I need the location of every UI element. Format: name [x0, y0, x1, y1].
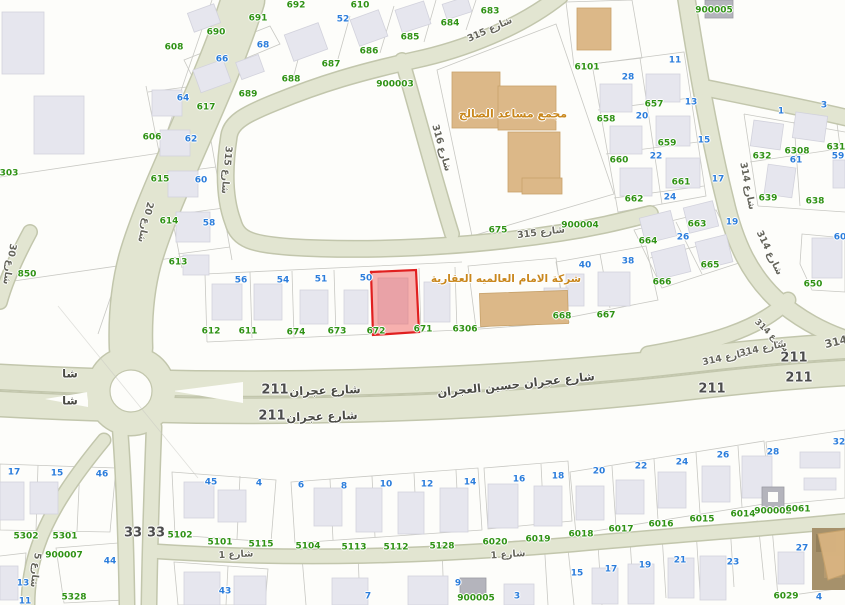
street-label: 314 شارع: [754, 229, 784, 276]
building-number-label: 1: [778, 108, 784, 117]
road-number-label: 211: [780, 352, 807, 365]
parcel-number-label: 674: [287, 329, 306, 338]
street-label: شارع 1: [490, 549, 525, 561]
building-number-label: 20: [636, 113, 649, 122]
map-viewport[interactable]: 6106926916906086896886876866856846836066…: [0, 0, 845, 605]
street-label: 316 شارع: [430, 124, 452, 173]
parcel-number-label: 668: [553, 313, 572, 322]
building-number-label: 62: [185, 136, 198, 145]
parcel-number-label: 900005: [457, 595, 495, 604]
building-number-label: 26: [717, 452, 730, 461]
parcel-number-label: 5113: [341, 544, 366, 553]
parcel-number-label: 660: [610, 157, 629, 166]
street-label: 5 شارع: [28, 552, 42, 588]
parcel-number-label: 606: [143, 134, 162, 143]
street-name-label: شارع عجران حسين العجران: [437, 371, 595, 399]
building-number-label: 17: [8, 469, 21, 478]
building-number-label: 32: [833, 439, 845, 448]
parcel-number-label: 6017: [608, 526, 633, 535]
parcel-number-label: 5101: [207, 539, 232, 548]
parcel-number-label: 614: [160, 218, 179, 227]
parcel-number-label: 5301: [52, 533, 77, 542]
street-label: 315 شارع: [517, 225, 566, 240]
building-number-label: 56: [235, 277, 248, 286]
building-number-label: 22: [650, 153, 663, 162]
street-name-label: شا: [62, 368, 78, 380]
building-number-label: 8: [341, 483, 347, 492]
parcel-number-label: 662: [625, 196, 644, 205]
building-number-label: 10: [380, 481, 393, 490]
parcel-number-label: 667: [597, 312, 616, 321]
parcel-number-label: 6018: [568, 531, 593, 540]
parcel-number-label: 608: [165, 44, 184, 53]
parcel-number-label: 665: [701, 262, 720, 271]
road-number-label: 211: [785, 372, 812, 385]
parcel-number-label: 5302: [13, 533, 38, 542]
parcel-number-label: 666: [653, 279, 672, 288]
parcel-number-label: 684: [441, 20, 460, 29]
parcel-number-label: 672: [367, 328, 386, 337]
parcel-number-label: 675: [489, 227, 508, 236]
parcel-number-label: 683: [481, 8, 500, 17]
building-number-label: 22: [635, 463, 648, 472]
parcel-number-label: 5128: [429, 543, 454, 552]
parcel-number-label: 6014: [730, 511, 755, 520]
parcel-number-label: 900004: [561, 222, 599, 231]
parcel-number-label: 900003: [376, 81, 414, 90]
parcel-number-label: 900007: [45, 552, 83, 561]
map-labels: 6106926916906086896886876866856846836066…: [0, 0, 845, 605]
building-number-label: 3: [821, 102, 827, 111]
parcel-number-label: 5102: [167, 532, 192, 541]
building-number-label: 59: [832, 153, 845, 162]
building-number-label: 19: [726, 219, 739, 228]
building-number-label: 24: [676, 459, 689, 468]
building-number-label: 13: [685, 99, 698, 108]
parcel-number-label: 632: [753, 153, 772, 162]
building-number-label: 24: [664, 194, 677, 203]
building-number-label: 60: [834, 234, 845, 243]
building-number-label: 4: [256, 480, 262, 489]
road-number-label: 33: [147, 527, 165, 540]
parcel-number-label: 658: [597, 116, 616, 125]
parcel-number-label: 690: [207, 29, 226, 38]
parcel-number-label: 689: [239, 91, 258, 100]
parcel-number-label: 671: [414, 326, 433, 335]
parcel-number-label: 687: [322, 61, 341, 70]
parcel-number-label: 638: [806, 198, 825, 207]
parcel-number-label: 673: [328, 328, 347, 337]
building-number-label: 19: [639, 562, 652, 571]
building-number-label: 58: [203, 220, 216, 229]
parcel-number-label: 6015: [689, 516, 714, 525]
street-name-label: شارع عجران: [289, 384, 361, 398]
building-number-label: 21: [674, 557, 687, 566]
parcel-number-label: 639: [759, 195, 778, 204]
building-number-label: 17: [605, 566, 618, 575]
parcel-number-label: 688: [282, 76, 301, 85]
building-number-label: 7: [365, 593, 371, 602]
parcel-number-label: 664: [639, 238, 658, 247]
street-name-label: شارع عجران: [286, 410, 358, 424]
parcel-number-label: 615: [151, 176, 170, 185]
parcel-number-label: 659: [658, 140, 677, 149]
building-number-label: 6: [298, 482, 304, 491]
landmark-label: شركة الامام العالميه العقارية: [431, 274, 581, 285]
building-number-label: 68: [257, 42, 270, 51]
parcel-number-label: 6019: [525, 536, 550, 545]
building-number-label: 54: [277, 277, 290, 286]
building-number-label: 43: [219, 588, 232, 597]
parcel-number-label: 613: [169, 259, 188, 268]
parcel-number-label: 657: [645, 101, 664, 110]
building-number-label: 23: [727, 559, 740, 568]
building-number-label: 4: [816, 594, 822, 603]
parcel-number-label: 5328: [61, 594, 86, 603]
building-number-label: 44: [104, 558, 117, 567]
parcel-number-label: 661: [672, 179, 691, 188]
building-number-label: 9: [455, 580, 461, 589]
building-number-label: 15: [571, 570, 584, 579]
street-label: 315 شارع: [219, 146, 233, 195]
building-number-label: 61: [790, 157, 803, 166]
parcel-number-label: 691: [249, 15, 268, 24]
parcel-number-label: 611: [239, 328, 258, 337]
building-number-label: 45: [205, 479, 218, 488]
building-number-label: 12: [421, 481, 434, 490]
parcel-number-label: 685: [401, 34, 420, 43]
building-number-label: 64: [177, 95, 190, 104]
building-number-label: 20: [593, 468, 606, 477]
parcel-number-label: 692: [287, 2, 306, 11]
building-number-label: 66: [216, 56, 229, 65]
street-label: 314: [824, 334, 845, 350]
building-number-label: 52: [337, 16, 350, 25]
street-label: 30 شارع: [1, 243, 18, 285]
parcel-number-label: 612: [202, 328, 221, 337]
parcel-number-label: 6306: [452, 326, 477, 335]
parcel-number-label: 6016: [648, 521, 673, 530]
building-number-label: 46: [96, 471, 109, 480]
parcel-number-label: 850: [18, 271, 37, 280]
parcel-number-label: 900005: [695, 7, 733, 16]
road-number-label: 211: [261, 384, 288, 397]
building-number-label: 27: [796, 545, 809, 554]
street-name-label: شا: [62, 395, 78, 407]
building-number-label: 3: [514, 593, 520, 602]
street-label: شارع 1: [218, 549, 253, 560]
parcel-number-label: 617: [197, 104, 216, 113]
parcel-number-label: 5112: [383, 544, 408, 553]
parcel-number-label: 303: [0, 170, 18, 179]
building-number-label: 15: [51, 470, 64, 479]
building-number-label: 28: [622, 74, 635, 83]
building-number-label: 50: [360, 275, 373, 284]
building-number-label: 11: [669, 57, 682, 66]
parcel-number-label: 610: [351, 2, 370, 11]
parcel-number-label: 5104: [295, 543, 320, 552]
building-number-label: 18: [552, 473, 565, 482]
building-number-label: 15: [698, 137, 711, 146]
parcel-number-label: 686: [360, 48, 379, 57]
parcel-number-label: 663: [688, 221, 707, 230]
road-number-label: 33: [124, 527, 142, 540]
building-number-label: 11: [19, 598, 32, 605]
building-number-label: 16: [513, 476, 526, 485]
parcel-number-label: 6061: [785, 506, 810, 515]
landmark-label: مجمع مساعد الصالح: [459, 109, 567, 120]
building-number-label: 26: [677, 234, 690, 243]
parcel-number-label: 6029: [773, 593, 798, 602]
building-number-label: 14: [464, 479, 477, 488]
street-label: 314 شارع: [738, 162, 756, 211]
street-label: 20 شارع: [136, 201, 155, 243]
parcel-number-label: 6020: [482, 539, 507, 548]
building-number-label: 51: [315, 276, 328, 285]
building-number-label: 40: [579, 262, 592, 271]
building-number-label: 28: [767, 449, 780, 458]
building-number-label: 60: [195, 177, 208, 186]
parcel-number-label: 650: [804, 281, 823, 290]
building-number-label: 17: [712, 176, 725, 185]
building-number-label: 38: [622, 258, 635, 267]
road-number-label: 211: [258, 410, 285, 423]
parcel-number-label: 6101: [574, 64, 599, 73]
street-label: 315 شارع: [466, 16, 514, 44]
road-number-label: 211: [698, 383, 725, 396]
